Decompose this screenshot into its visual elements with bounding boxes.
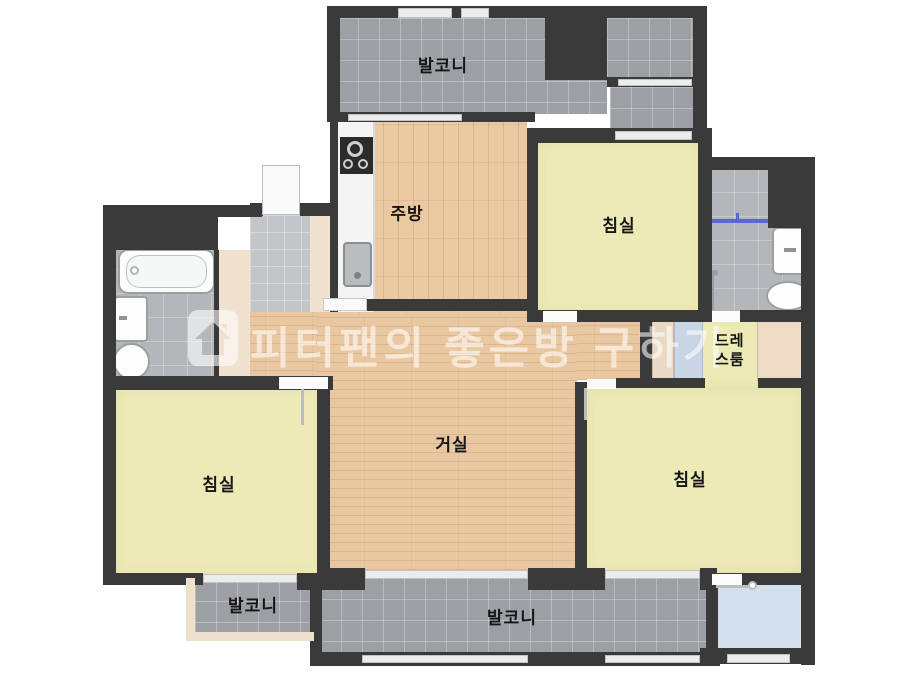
wall	[528, 568, 605, 590]
balcony-left-outer-wall	[186, 578, 195, 640]
kitchen-sink	[343, 242, 372, 287]
wall	[712, 157, 812, 170]
entrance-floor	[250, 215, 310, 312]
window	[615, 131, 692, 140]
window	[727, 654, 790, 663]
bathroom-right-sink-faucet	[784, 248, 796, 252]
door-knob-utility-room	[748, 581, 757, 590]
balcony-top-right-floor	[607, 18, 695, 80]
wall	[616, 378, 705, 388]
balcony-left-outer-wall	[186, 632, 314, 641]
wall-block-bathroom	[112, 217, 218, 250]
kitchen-sink-drain	[354, 272, 361, 279]
wall	[801, 157, 815, 322]
room-label-living-room: 거실	[435, 431, 468, 456]
room-label-balcony-bottom-left: 발코니	[228, 592, 278, 617]
room-label-bedroom-top-right: 침실	[602, 212, 635, 237]
window	[365, 570, 528, 579]
door-leaf-bedroom-right	[584, 388, 587, 420]
window	[362, 655, 528, 663]
room-label-bedroom-left: 침실	[202, 471, 235, 496]
bathroom-left-toilet	[113, 343, 150, 380]
room-label-dressing-room: 드레스룸	[715, 332, 759, 370]
wall-block-balcony	[545, 14, 607, 80]
wall	[693, 6, 707, 143]
wall	[327, 6, 700, 18]
wall	[327, 6, 340, 122]
balcony-bedroom-front-floor	[610, 87, 695, 134]
wall	[105, 205, 262, 217]
window	[398, 8, 452, 18]
door-leaf-bedroom-left	[301, 389, 304, 425]
window	[461, 8, 489, 18]
wall	[801, 312, 815, 665]
dressing-closet	[757, 317, 804, 381]
utility-room-floor	[718, 583, 806, 651]
door-utility-room	[712, 574, 742, 585]
window	[203, 574, 297, 583]
wall	[103, 205, 116, 585]
shower-rod-hook	[736, 213, 739, 219]
room-label-kitchen: 주방	[390, 200, 423, 225]
door-kitchen	[323, 298, 367, 311]
stove-burner-large	[347, 141, 363, 157]
stove-burner-small-1	[343, 159, 353, 169]
bathtub-drain	[130, 266, 139, 275]
wall	[317, 385, 330, 577]
window	[348, 114, 462, 121]
room-label-balcony-top: 발코니	[418, 52, 468, 77]
window	[605, 655, 700, 663]
door-bedroom-left	[279, 377, 328, 389]
wall	[317, 568, 365, 590]
bathroom-left-sink-faucet	[119, 316, 127, 320]
room-label-bedroom-right: 침실	[673, 466, 706, 491]
wall	[367, 299, 530, 311]
room-label-balcony-bottom: 발코니	[487, 604, 537, 629]
stove-burner-small-2	[358, 159, 368, 169]
window	[605, 570, 700, 579]
wall	[698, 128, 712, 322]
door-leaf-utility-room	[716, 585, 752, 588]
peterpan-house-logo-icon	[188, 310, 238, 371]
wall	[300, 203, 335, 216]
window	[618, 79, 692, 86]
watermark-text: 피터팬의 좋은방 구하기	[250, 312, 727, 376]
floor-plan: 피터팬의 좋은방 구하기 발코니 주방 침실 드레스룸 거실 침실 침실 발코니…	[0, 0, 923, 676]
shower-rod	[710, 219, 768, 223]
door-bedroom-right	[587, 379, 616, 389]
entrance-door	[262, 165, 300, 215]
wall	[527, 128, 538, 322]
